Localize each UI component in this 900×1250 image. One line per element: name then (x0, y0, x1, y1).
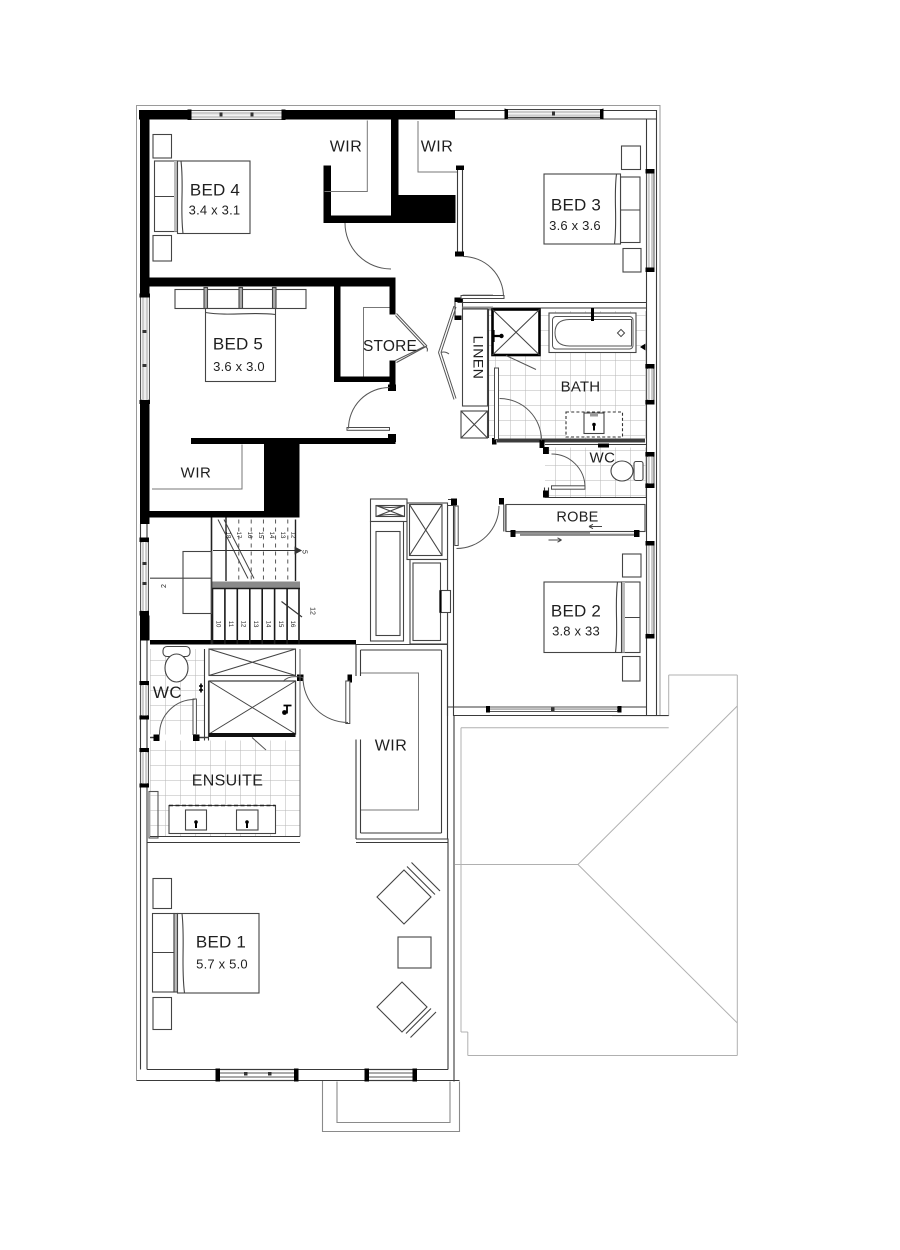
svg-text:3.8 x 33: 3.8 x 33 (552, 624, 600, 639)
svg-text:11: 11 (227, 621, 233, 628)
svg-text:10: 10 (215, 621, 221, 628)
svg-text:WC: WC (153, 683, 182, 702)
svg-text:12: 12 (290, 532, 296, 539)
svg-text:WIR: WIR (330, 139, 363, 156)
svg-text:ENSUITE: ENSUITE (192, 773, 263, 790)
svg-text:BED 1: BED 1 (196, 933, 246, 952)
svg-text:3.6 x 3.0: 3.6 x 3.0 (213, 359, 265, 374)
svg-text:WIR: WIR (375, 738, 408, 755)
svg-text:15: 15 (277, 621, 283, 628)
svg-text:WC: WC (590, 450, 616, 467)
svg-text:14: 14 (268, 532, 274, 539)
svg-text:BED 3: BED 3 (551, 196, 601, 215)
svg-text:5: 5 (301, 550, 308, 554)
svg-text:3.6 x 3.6: 3.6 x 3.6 (549, 218, 601, 233)
svg-text:STORE: STORE (363, 338, 417, 355)
svg-text:17: 17 (235, 532, 241, 539)
svg-text:16: 16 (289, 621, 295, 628)
svg-text:14: 14 (265, 621, 271, 628)
svg-text:BED 4: BED 4 (190, 181, 240, 200)
svg-text:3.4 x 3.1: 3.4 x 3.1 (189, 203, 241, 218)
svg-text:LINEN: LINEN (471, 336, 487, 380)
svg-text:WIR: WIR (181, 465, 212, 482)
svg-text:WIR: WIR (421, 139, 454, 156)
svg-text:16: 16 (246, 532, 252, 539)
svg-text:18: 18 (225, 532, 231, 539)
svg-text:12: 12 (309, 607, 316, 615)
svg-text:13: 13 (279, 532, 285, 539)
svg-text:5.7 x 5.0: 5.7 x 5.0 (196, 957, 248, 972)
svg-text:12: 12 (240, 621, 246, 628)
svg-text:2: 2 (161, 584, 168, 588)
svg-text:BED 2: BED 2 (551, 602, 601, 621)
svg-text:15: 15 (257, 532, 263, 539)
svg-text:ROBE: ROBE (556, 510, 598, 526)
svg-text:BED 5: BED 5 (213, 335, 263, 354)
svg-text:13: 13 (252, 621, 258, 628)
svg-text:BATH: BATH (561, 379, 601, 396)
